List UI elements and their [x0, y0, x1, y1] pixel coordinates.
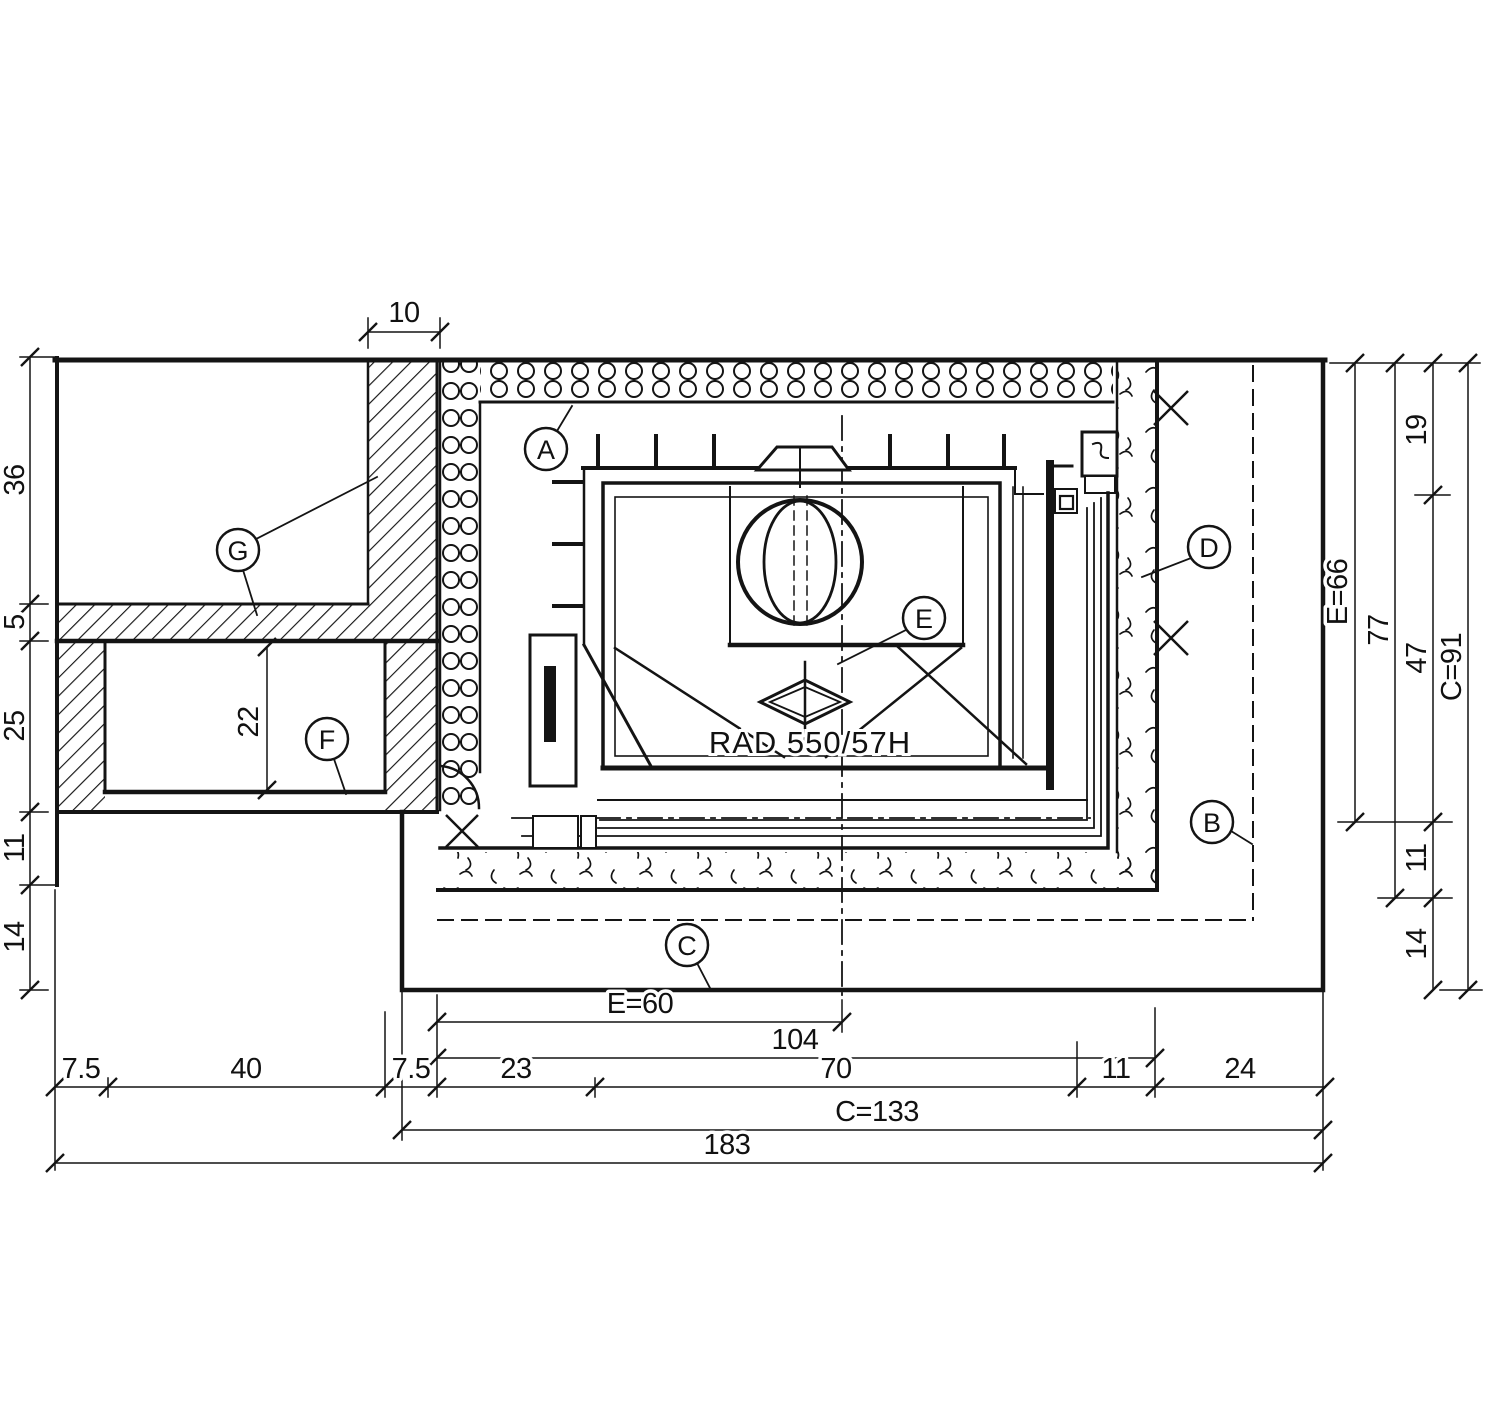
- dim-label: 183: [704, 1129, 751, 1161]
- dim-label: C=91: [1436, 633, 1468, 701]
- dim-label: 23: [500, 1053, 531, 1085]
- stone-band-bottom: [440, 852, 1157, 890]
- dim-label: 7.5: [62, 1053, 101, 1085]
- dim-label: 77: [1363, 614, 1395, 645]
- left-comb-ticks: [552, 482, 584, 606]
- flue-outlet-circle: [738, 500, 862, 624]
- callout-b-label: B: [1203, 808, 1221, 838]
- callout-c-label: C: [677, 931, 697, 961]
- dim-top-wall-width: 10: [359, 297, 449, 348]
- right-double-wall: [1013, 487, 1023, 758]
- callout-a-leader: [557, 406, 572, 431]
- damper-box-lower: [1085, 476, 1115, 493]
- stone-band-vertical: [1117, 362, 1157, 888]
- niche-right-wall-hatch: [385, 641, 437, 812]
- dim-label: 14: [0, 921, 31, 953]
- dim-right-group: E=66 77 19 47 11 14 C=91: [1322, 354, 1482, 999]
- dim-label: 11: [1101, 1053, 1130, 1085]
- callout-f-label: F: [319, 725, 336, 755]
- dim-left-chain: 36 5 25 11 14: [0, 348, 57, 999]
- callout-g-leaders: [243, 477, 377, 615]
- dim-label: C=133: [835, 1096, 919, 1128]
- flue-axis-dashes: [794, 496, 807, 630]
- callout-a-label: A: [537, 435, 555, 465]
- dim-label: 36: [0, 464, 31, 495]
- callout-f-leader: [334, 759, 346, 794]
- callout-e-label: E: [915, 604, 933, 634]
- dim-label: 47: [1401, 642, 1433, 673]
- callout-c-leader: [697, 963, 710, 988]
- x-mark-icon: [446, 815, 478, 847]
- dim-label: 11: [0, 833, 31, 862]
- niche-left-wall-hatch: [57, 641, 105, 812]
- flue-collar-bump: [757, 447, 849, 470]
- damper-box: [1082, 432, 1117, 476]
- dim-label: 70: [820, 1053, 851, 1085]
- dim-label: E=60: [607, 988, 674, 1020]
- dim-label: 14: [1401, 928, 1433, 960]
- masonry-wall-g-hatch: [368, 360, 437, 604]
- dim-niche-height: 22: [233, 638, 276, 799]
- dim-label: 11: [1401, 843, 1433, 872]
- insulation-band-vertical: [440, 362, 480, 810]
- hood-right-step: [1015, 468, 1043, 494]
- callout-b-leader: [1231, 831, 1252, 844]
- dim-label: E=66: [1322, 559, 1354, 626]
- callout-g-label: G: [227, 536, 248, 566]
- stove-model-label: RAD 550/57H: [709, 725, 911, 760]
- door-front-slant: [584, 645, 652, 768]
- convection-channels: [522, 498, 1101, 836]
- door-handle-bar: [544, 666, 556, 742]
- stove-unit: RAD 550/57H: [440, 432, 1117, 848]
- dim-label: 104: [772, 1024, 819, 1056]
- x-mark-icon: [1154, 621, 1188, 655]
- masonry-slab-hatch: [57, 604, 437, 641]
- insulation-band-horizontal: [480, 362, 1113, 402]
- dim-label: 24: [1224, 1053, 1256, 1085]
- base-brick: [533, 816, 578, 848]
- base-brick: [581, 816, 596, 848]
- dim-label: 22: [233, 706, 265, 737]
- callout-d-label: D: [1199, 533, 1219, 563]
- drawing-canvas: RAD 550/57H A G F E D B C 10: [0, 0, 1500, 1427]
- dim-label: 19: [1401, 414, 1433, 445]
- dim-label: 40: [230, 1053, 261, 1085]
- dim-label: 10: [388, 297, 419, 329]
- fireplace-plan-drawing: RAD 550/57H A G F E D B C 10: [0, 0, 1500, 1427]
- flue-damper-ellipse: [764, 501, 836, 623]
- x-mark-icon: [1154, 391, 1188, 425]
- dim-label: 7.5: [392, 1053, 431, 1085]
- dim-label: 5: [0, 614, 31, 630]
- dim-label: 25: [0, 710, 31, 741]
